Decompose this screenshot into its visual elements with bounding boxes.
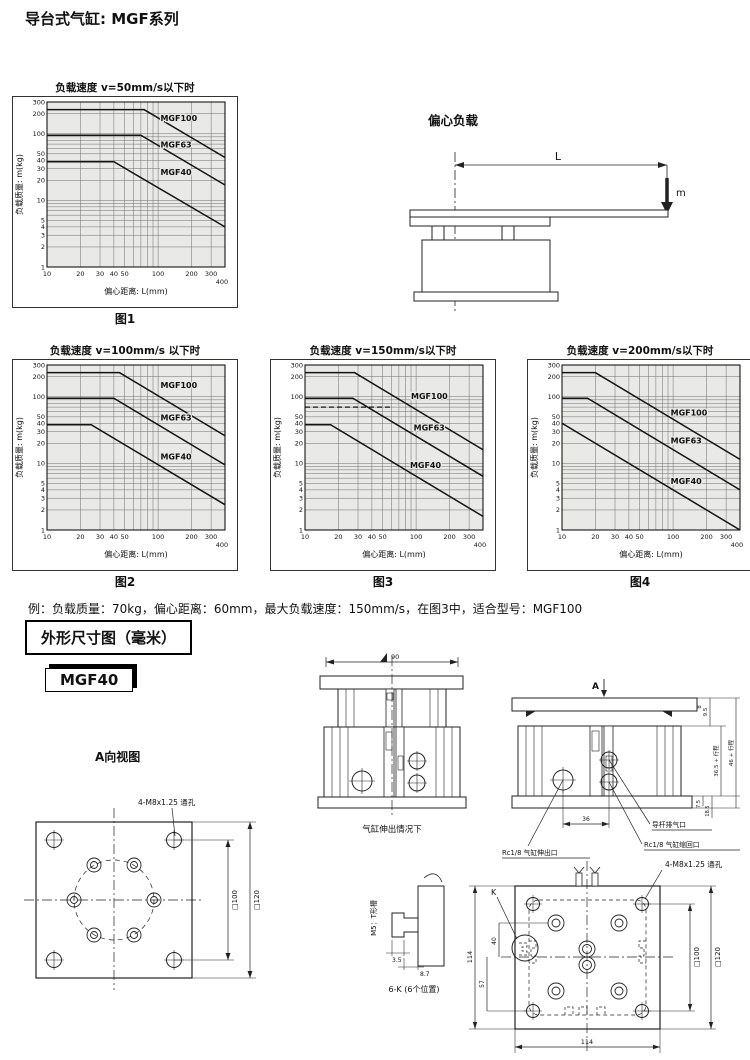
svg-text:300: 300 (720, 533, 732, 541)
side-label-guide-port: 导杆排气口 (652, 820, 686, 829)
chart4-caption: 图4 (527, 573, 750, 590)
svg-text:1: 1 (41, 526, 45, 534)
svg-text:1: 1 (556, 526, 560, 534)
view-a-hole-note: 4-M8x1.25 通孔 (138, 797, 196, 807)
chart-plot: 1020304050100200300400123451020304050100… (13, 360, 235, 570)
svg-text:20: 20 (295, 440, 303, 448)
svg-text:40: 40 (368, 533, 376, 541)
t-slot-label: M5：T形槽 (369, 900, 378, 936)
y-axis-label: 负载质量: m(kg) (272, 417, 282, 478)
model-badge: MGF40 (45, 668, 133, 692)
svg-text:30: 30 (37, 428, 45, 436)
x-axis-label: 偏心距离: L(mm) (619, 549, 683, 559)
top-view-dim-40: 40 (491, 937, 498, 945)
svg-text:1: 1 (299, 526, 303, 534)
table-plate (410, 210, 668, 217)
x-axis-label: 偏心距离: L(mm) (104, 286, 168, 296)
chart-plot: 1020304050100200300400123451020304050100… (271, 360, 493, 570)
svg-text:300: 300 (33, 361, 45, 369)
series-label-MGF63: MGF63 (160, 414, 191, 423)
chart4-title: 负载速度 v=200mm/s以下时 (527, 343, 750, 358)
svg-text:2: 2 (41, 506, 45, 514)
svg-text:100: 100 (548, 393, 560, 401)
view-a-drawing: 4-M8x1.25 通孔 □100 □120 (22, 792, 277, 997)
svg-text:50: 50 (37, 150, 45, 158)
svg-text:100: 100 (291, 393, 303, 401)
svg-text:50: 50 (552, 413, 560, 421)
model-badge-wrap: MGF40 (45, 668, 133, 692)
y-axis-label: 负载质量: m(kg) (14, 417, 24, 478)
svg-text:50: 50 (636, 533, 644, 541)
svg-text:3: 3 (556, 495, 560, 503)
svg-text:300: 300 (205, 270, 217, 278)
side-dim-body: 36.5 + 行程 (712, 745, 720, 777)
chart2-frame: 1020304050100200300400123451020304050100… (12, 359, 238, 571)
svg-text:100: 100 (667, 533, 679, 541)
svg-text:50: 50 (379, 533, 387, 541)
svg-text:3: 3 (41, 232, 45, 240)
svg-text:100: 100 (33, 393, 45, 401)
svg-text:30: 30 (295, 428, 303, 436)
svg-text:300: 300 (291, 361, 303, 369)
svg-text:50: 50 (121, 533, 129, 541)
series-label-MGF40: MGF40 (671, 477, 703, 486)
chart-figure-2: 负载速度 v=100mm/s 以下时 102030405010020030040… (12, 343, 238, 590)
side-dim-total: 46 + 行程 (727, 739, 735, 766)
dimensions-section-header: 外形尺寸图（毫米） (25, 620, 192, 655)
svg-text:30: 30 (552, 428, 560, 436)
svg-text:20: 20 (37, 440, 45, 448)
chart4-frame: 1020304050100200300400123451020304050100… (527, 359, 750, 571)
svg-text:30: 30 (354, 533, 362, 541)
svg-text:100: 100 (152, 533, 164, 541)
series-label-MGF100: MGF100 (160, 381, 197, 390)
side-view-geometry (502, 679, 740, 858)
side-dim-ports: 36 (582, 816, 590, 823)
top-view-k-label: K (491, 888, 497, 897)
svg-text:100: 100 (410, 533, 422, 541)
chart1-caption: 图1 (12, 310, 238, 327)
svg-text:5: 5 (41, 217, 45, 225)
svg-text:200: 200 (33, 373, 45, 381)
svg-text:5: 5 (299, 480, 303, 488)
side-view-drawing: A 8 9.5 36.5 + 行程 46 + 行程 7.5 18.5 36 Rc… (500, 676, 750, 871)
top-view-geometry (469, 861, 716, 1053)
svg-text:3: 3 (299, 495, 303, 503)
svg-text:2: 2 (556, 506, 560, 514)
series-label-MGF100: MGF100 (160, 114, 197, 123)
chart2-caption: 图2 (12, 573, 238, 590)
svg-text:30: 30 (37, 165, 45, 173)
svg-text:20: 20 (334, 533, 342, 541)
chart-figure-1: 负载速度 v=50mm/s以下时 10203040501002003004001… (12, 80, 238, 327)
side-dim-9-5: 9.5 (703, 707, 709, 716)
svg-text:20: 20 (37, 177, 45, 185)
chart-figure-4: 负载速度 v=200mm/s以下时 1020304050100200300400… (527, 343, 750, 590)
top-view-hole-note: 4-M8x1.25 通孔 (665, 859, 723, 869)
view-a-label: A向视图 (95, 748, 140, 765)
svg-text:40: 40 (110, 533, 118, 541)
side-label-retract-port: Rc1/8 气缸缩回口 (644, 840, 700, 849)
side-dim-7-5: 7.5 (696, 800, 702, 808)
top-view-drawing: K 4-M8x1.25 通孔 114 40 57 □100 □120 114 (453, 853, 750, 1060)
svg-text:50: 50 (295, 413, 303, 421)
svg-text:1: 1 (41, 263, 45, 271)
svg-text:300: 300 (205, 533, 217, 541)
catalog-page: 导台式气缸: MGF系列 负载速度 v=50mm/s以下时 1020304050… (0, 0, 750, 1060)
svg-text:20: 20 (591, 533, 599, 541)
top-view-dim-120: □120 (714, 947, 722, 967)
svg-text:40: 40 (110, 270, 118, 278)
chart-plot: 1020304050100200300400123451020304050100… (13, 97, 235, 307)
top-view-dim-width: 114 (581, 1038, 593, 1046)
extended-caption: 气缸伸出情况下 (362, 824, 422, 835)
svg-text:400: 400 (474, 541, 486, 549)
y-axis-label: 负载质量: m(kg) (529, 417, 539, 478)
series-label-MGF63: MGF63 (671, 436, 702, 445)
x-axis-label: 偏心距离: L(mm) (104, 549, 168, 559)
selection-example-text: 例：负载质量：70kg，偏心距离：60mm，最大负载速度：150mm/s，在图3… (28, 600, 582, 617)
svg-text:10: 10 (37, 197, 45, 205)
dimensions-section: 外形尺寸图（毫米） (25, 620, 192, 655)
extended-cylinder-drawing: 90 气缸伸出情况下 (298, 646, 493, 841)
svg-text:400: 400 (731, 541, 743, 549)
view-a-geometry (24, 808, 256, 990)
extended-geometry (318, 653, 466, 818)
svg-text:400: 400 (216, 541, 228, 549)
svg-text:200: 200 (185, 533, 197, 541)
series-label-MGF63: MGF63 (160, 141, 191, 150)
extended-dim-width: 90 (391, 653, 399, 661)
svg-text:2: 2 (41, 243, 45, 251)
t-slot-dim-8-7: 8.7 (420, 971, 430, 978)
chart1-title: 负载速度 v=50mm/s以下时 (12, 80, 238, 95)
svg-text:300: 300 (33, 98, 45, 106)
svg-text:30: 30 (96, 270, 104, 278)
chart2-title: 负载速度 v=100mm/s 以下时 (12, 343, 238, 358)
svg-text:10: 10 (552, 460, 560, 468)
x-axis-label: 偏心距离: L(mm) (362, 549, 426, 559)
svg-text:200: 200 (548, 373, 560, 381)
y-axis-label: 负载质量: m(kg) (14, 154, 24, 215)
series-label-MGF100: MGF100 (411, 392, 448, 401)
chart-plot: 1020304050100200300400123451020304050100… (528, 360, 750, 570)
side-view-arrow-label: A (592, 682, 599, 692)
svg-text:100: 100 (33, 130, 45, 138)
chart3-caption: 图3 (270, 573, 496, 590)
chart1-frame: 1020304050100200300400123451020304050100… (12, 96, 238, 308)
series-label-MGF63: MGF63 (414, 424, 445, 433)
top-view-dim-height: 114 (466, 951, 474, 963)
dim-L-label: L (555, 150, 562, 163)
svg-text:30: 30 (96, 533, 104, 541)
series-label-MGF100: MGF100 (671, 409, 708, 418)
svg-text:20: 20 (76, 270, 84, 278)
eccentric-geometry (410, 152, 673, 312)
svg-text:400: 400 (216, 278, 228, 286)
t-slot-dim-3-5: 3.5 (392, 957, 402, 964)
svg-text:10: 10 (37, 460, 45, 468)
svg-text:200: 200 (185, 270, 197, 278)
eccentric-load-diagram: L m (362, 122, 710, 322)
svg-text:200: 200 (700, 533, 712, 541)
page-title: 导台式气缸: MGF系列 (25, 8, 179, 29)
svg-text:50: 50 (121, 270, 129, 278)
view-a-dim-100: □100 (231, 890, 239, 910)
top-view-dim-57: 57 (479, 980, 486, 988)
t-slot-caption: 6-K (6个位置) (388, 984, 439, 994)
svg-text:300: 300 (548, 361, 560, 369)
svg-text:30: 30 (611, 533, 619, 541)
chart3-title: 负载速度 v=150mm/s以下时 (270, 343, 496, 358)
svg-text:20: 20 (552, 440, 560, 448)
chart-figure-3: 负载速度 v=150mm/s以下时 1020304050100200300400… (270, 343, 496, 590)
svg-text:300: 300 (463, 533, 475, 541)
chart3-frame: 1020304050100200300400123451020304050100… (270, 359, 496, 571)
cylinder-body (422, 240, 550, 292)
svg-text:200: 200 (443, 533, 455, 541)
svg-text:5: 5 (41, 480, 45, 488)
svg-text:40: 40 (625, 533, 633, 541)
view-a-dim-120: □120 (253, 890, 261, 910)
svg-text:20: 20 (76, 533, 84, 541)
svg-text:50: 50 (37, 413, 45, 421)
series-label-MGF40: MGF40 (160, 452, 192, 461)
svg-text:200: 200 (33, 110, 45, 118)
t-slot-geometry (386, 874, 444, 970)
svg-text:3: 3 (41, 495, 45, 503)
series-label-MGF40: MGF40 (410, 461, 442, 470)
svg-text:5: 5 (556, 480, 560, 488)
svg-text:10: 10 (295, 460, 303, 468)
side-dim-18-5: 18.5 (705, 805, 711, 816)
mass-label: m (676, 188, 686, 199)
svg-text:200: 200 (291, 373, 303, 381)
series-label-MGF40: MGF40 (160, 168, 192, 177)
svg-text:2: 2 (299, 506, 303, 514)
top-view-dim-100: □100 (693, 947, 701, 967)
svg-text:100: 100 (152, 270, 164, 278)
